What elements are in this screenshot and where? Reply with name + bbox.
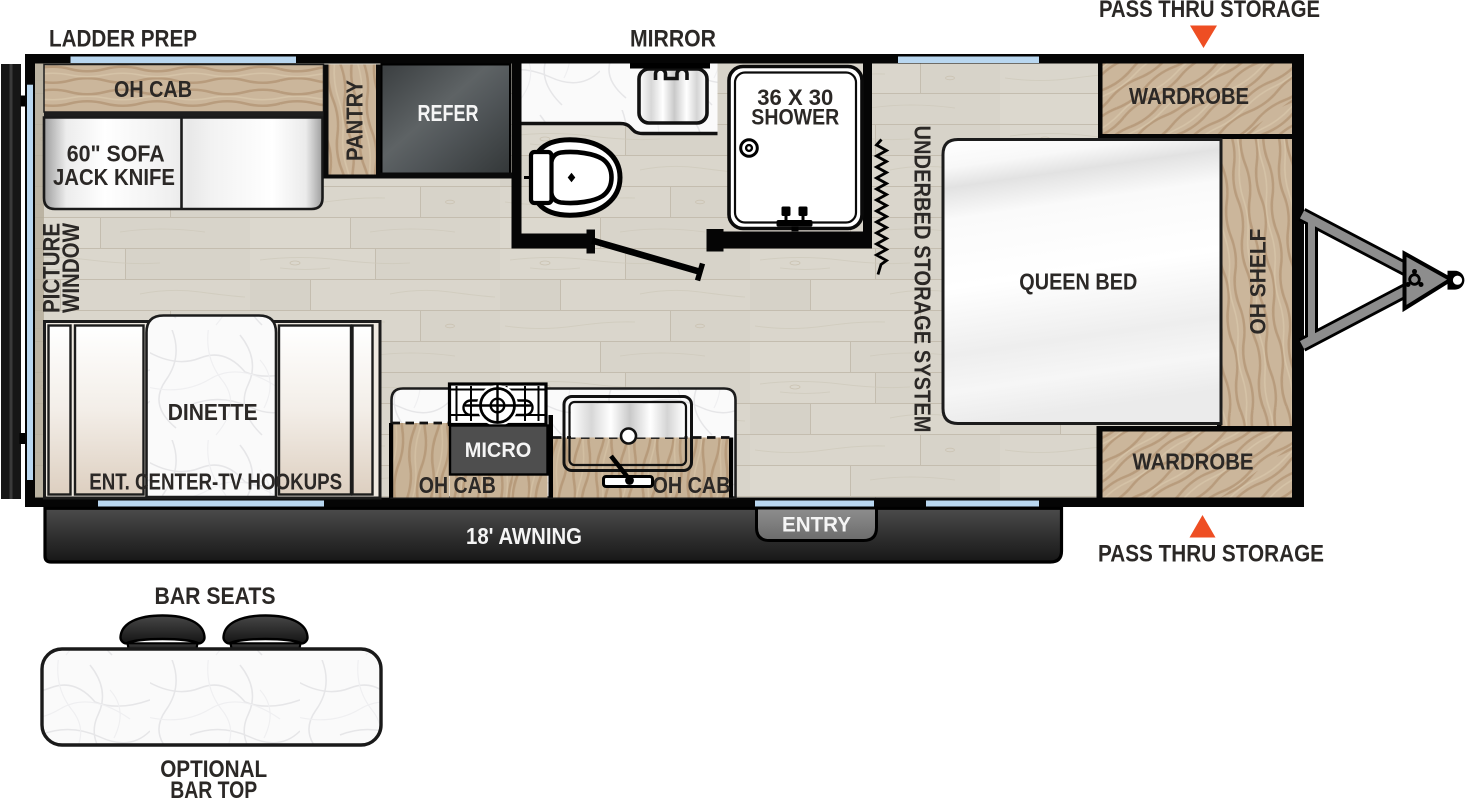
svg-text:UNDERBED STORAGE SYSTEM: UNDERBED STORAGE SYSTEM: [910, 126, 936, 433]
svg-text:OH CAB: OH CAB: [419, 472, 496, 498]
svg-text:REFER: REFER: [418, 100, 479, 126]
svg-text:18' AWNING: 18' AWNING: [466, 523, 582, 549]
svg-text:OH SHELF: OH SHELF: [1246, 229, 1271, 335]
svg-text:BAR TOP: BAR TOP: [170, 777, 257, 799]
svg-text:JACK KNIFE: JACK KNIFE: [53, 164, 175, 190]
svg-text:WINDOW: WINDOW: [58, 223, 85, 313]
svg-text:MICRO: MICRO: [465, 439, 532, 462]
svg-text:OH CAB: OH CAB: [653, 472, 731, 498]
svg-text:BAR SEATS: BAR SEATS: [155, 583, 276, 610]
svg-text:60" SOFA: 60" SOFA: [67, 141, 165, 167]
svg-text:WARDROBE: WARDROBE: [1133, 449, 1254, 475]
svg-text:ENTRY: ENTRY: [782, 514, 851, 537]
svg-text:ENT. CENTER-TV HOOKUPS: ENT. CENTER-TV HOOKUPS: [89, 469, 342, 495]
svg-text:PASS THRU STORAGE: PASS THRU STORAGE: [1098, 541, 1324, 568]
svg-text:PASS THRU STORAGE: PASS THRU STORAGE: [1099, 0, 1320, 23]
svg-text:OH CAB: OH CAB: [114, 76, 192, 102]
svg-text:LADDER PREP: LADDER PREP: [49, 26, 197, 53]
svg-text:QUEEN BED: QUEEN BED: [1019, 268, 1137, 294]
svg-text:MIRROR: MIRROR: [630, 26, 716, 53]
svg-text:DINETTE: DINETTE: [168, 399, 258, 425]
svg-text:PANTRY: PANTRY: [342, 80, 368, 161]
svg-text:SHOWER: SHOWER: [751, 105, 839, 130]
svg-text:WARDROBE: WARDROBE: [1129, 83, 1249, 109]
